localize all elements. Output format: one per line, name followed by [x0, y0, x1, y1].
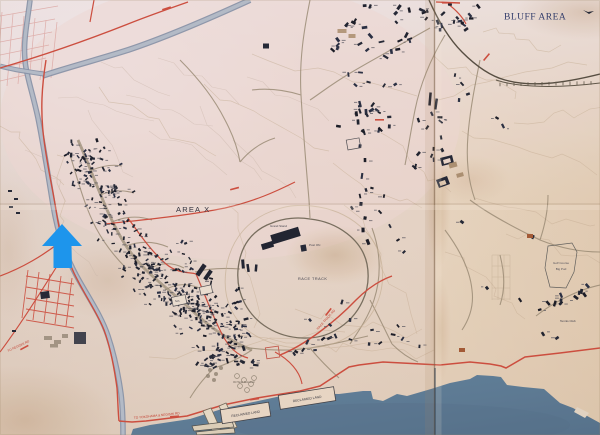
svg-text:BLUFF AREA: BLUFF AREA	[504, 13, 566, 23]
svg-text:AREA X: AREA X	[176, 205, 210, 214]
svg-text:Tennis Club: Tennis Club	[560, 319, 576, 323]
svg-text:RACE TRACK: RACE TRACK	[298, 277, 327, 281]
